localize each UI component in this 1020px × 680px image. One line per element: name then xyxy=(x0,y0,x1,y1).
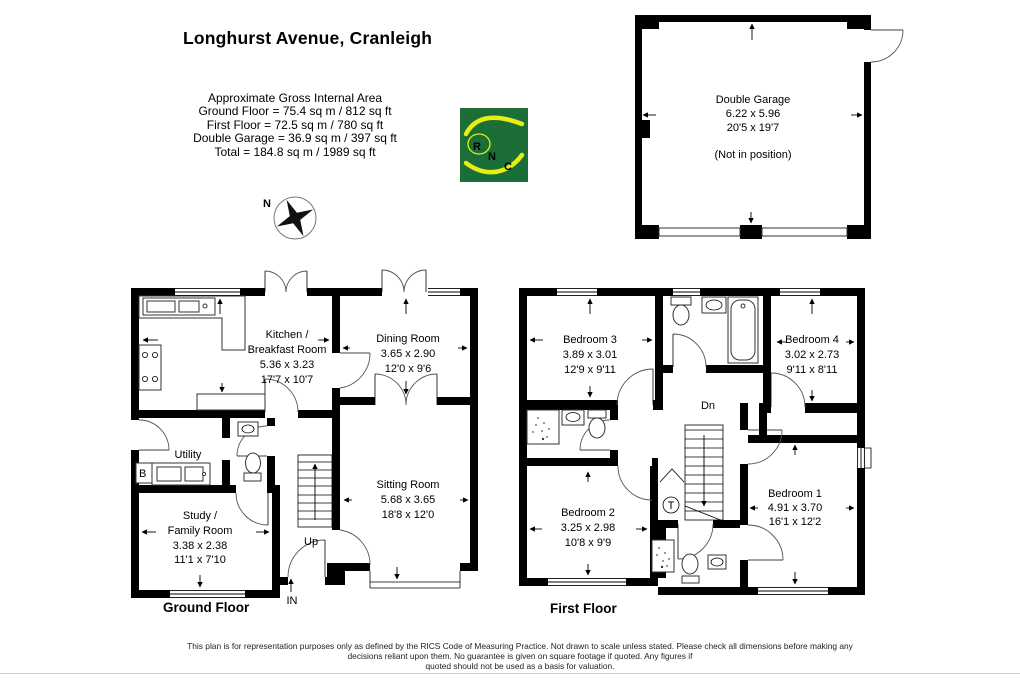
garage-side-door-arc xyxy=(871,30,903,62)
bedroom3-name: Bedroom 3 xyxy=(563,334,617,346)
study-imperial: 11'1 x 7'10 xyxy=(174,554,226,566)
disclaimer: This plan is for representation purposes… xyxy=(150,641,890,671)
bedroom4-window xyxy=(780,288,820,296)
garage-metric: 6.22 x 5.96 xyxy=(726,108,780,120)
bedroom1-metric: 4.91 x 3.70 xyxy=(768,502,822,514)
page-title: Longhurst Avenue, Cranleigh xyxy=(183,28,432,49)
dining-label: Dining Room 3.65 x 2.90 12'0 x 9'6 xyxy=(376,333,440,375)
bedroom2-label: Bedroom 2 3.25 x 2.98 10'8 x 9'9 xyxy=(561,507,615,549)
bathroom-window xyxy=(673,288,700,296)
garage-note: (Not in position) xyxy=(714,149,791,161)
showerroom-sink xyxy=(708,555,726,569)
kitchen-metric: 5.36 x 3.23 xyxy=(260,359,314,371)
disclaimer-line1: This plan is for representation purposes… xyxy=(150,641,890,651)
dining-window xyxy=(428,288,460,296)
kitchen-label: Kitchen / Breakfast Room 5.36 x 3.23 17'… xyxy=(248,329,327,386)
bedroom4-name: Bedroom 4 xyxy=(785,334,839,346)
ensuite-sink xyxy=(562,410,584,425)
ground-floor-label: Ground Floor xyxy=(163,600,249,615)
study-name1: Study / xyxy=(183,510,218,522)
showerroom-shower xyxy=(652,540,674,572)
wc-fixtures xyxy=(238,422,261,481)
compass-rose: N xyxy=(255,185,335,251)
kitchen-window xyxy=(175,288,240,296)
bathtub xyxy=(728,297,758,363)
bedroom1-side-window xyxy=(857,448,871,468)
bedroom3-label: Bedroom 3 3.89 x 3.01 12'9 x 9'11 xyxy=(563,334,617,376)
dining-name: Dining Room xyxy=(376,333,440,345)
area-line-first: First Floor = 72.5 sq m / 780 sq ft xyxy=(140,119,450,132)
bedroom4-label: Bedroom 4 3.02 x 2.73 9'11 x 8'11 xyxy=(785,334,839,376)
ground-stairs: Up xyxy=(298,455,332,548)
rnc-logo: R N C xyxy=(460,108,528,182)
bedroom1-window xyxy=(758,587,828,595)
garage-imperial: 20'5 x 19'7 xyxy=(727,122,780,134)
kitchen-imperial: 17'7 x 10'7 xyxy=(261,374,314,386)
utility-sink xyxy=(152,463,210,485)
water-tank: T xyxy=(663,497,679,513)
boiler-label: B xyxy=(139,468,146,480)
utility-name: Utility xyxy=(175,449,202,461)
hob xyxy=(139,345,161,390)
compass-star xyxy=(277,200,313,236)
disclaimer-line3: quoted should not be used as a basis for… xyxy=(150,661,890,671)
kitchen-sink xyxy=(143,298,215,315)
stairs-down-label: Dn xyxy=(701,400,715,412)
sitting-bay-window xyxy=(370,571,460,588)
first-floor-plan: Dn T Bedroom 3 3.89 x 3.01 12'9 x 9'11 B… xyxy=(518,250,878,600)
bathroom-fixtures xyxy=(671,297,758,363)
garage-plan: Double Garage 6.22 x 5.96 20'5 x 19'7 (N… xyxy=(630,10,905,245)
ensuite-fixtures xyxy=(527,410,606,444)
study-metric: 3.38 x 2.38 xyxy=(173,540,227,552)
kitchen-peninsula-counter xyxy=(197,394,265,410)
disclaimer-line2: decisions reliant upon them. No guarante… xyxy=(150,651,890,661)
sitting-label: Sitting Room 5.68 x 3.65 18'8 x 12'0 xyxy=(377,479,440,521)
kitchen-fixtures xyxy=(139,296,265,410)
ensuite-toilet xyxy=(588,410,606,438)
sitting-imperial: 18'8 x 12'0 xyxy=(382,509,435,521)
bedroom2-name: Bedroom 2 xyxy=(561,507,615,519)
ensuite-shower xyxy=(527,410,559,444)
bedroom3-metric: 3.89 x 3.01 xyxy=(563,349,617,361)
area-line-total: Total = 184.8 sq m / 1989 sq ft xyxy=(140,146,450,159)
bedroom4-metric: 3.02 x 2.73 xyxy=(785,349,839,361)
entrance-label: IN xyxy=(287,595,298,607)
study-label: Study / Family Room 3.38 x 2.38 11'1 x 7… xyxy=(168,510,233,566)
wc-toilet xyxy=(244,453,261,481)
bedroom3-window xyxy=(557,288,597,296)
logo-letter-c: C xyxy=(504,161,512,173)
showerroom-toilet xyxy=(682,554,699,583)
bedroom1-imperial: 16'1 x 12'2 xyxy=(769,516,822,528)
logo-letter-n: N xyxy=(488,151,496,163)
bedroom3-imperial: 12'9 x 9'11 xyxy=(564,364,616,376)
area-summary: Approximate Gross Internal Area Ground F… xyxy=(140,92,450,159)
bedroom4-imperial: 9'11 x 8'11 xyxy=(787,364,838,376)
bedroom1-label: Bedroom 1 4.91 x 3.70 16'1 x 12'2 xyxy=(768,488,822,528)
area-line-ground: Ground Floor = 75.4 sq m / 812 sq ft xyxy=(140,105,450,118)
study-window xyxy=(170,590,245,598)
bedroom1-name: Bedroom 1 xyxy=(768,488,822,500)
bottom-rule xyxy=(0,673,1020,674)
bedroom2-imperial: 10'8 x 9'9 xyxy=(565,537,611,549)
ground-floor-plan: B Up xyxy=(130,248,482,620)
utility-fixtures: B xyxy=(136,463,210,485)
dining-imperial: 12'0 x 9'6 xyxy=(385,363,431,375)
bathroom-toilet xyxy=(671,297,691,325)
study-name2: Family Room xyxy=(168,525,233,537)
kitchen-name1: Kitchen / xyxy=(266,329,310,341)
garage-name: Double Garage xyxy=(716,94,791,106)
floorplan-page: { "title": "Longhurst Avenue, Cranleigh"… xyxy=(0,0,1020,680)
first-stairs: Dn xyxy=(685,400,723,521)
first-floor-label: First Floor xyxy=(550,601,617,616)
bedroom2-metric: 3.25 x 2.98 xyxy=(561,522,615,534)
sitting-name: Sitting Room xyxy=(377,479,440,491)
logo-letter-r: R xyxy=(473,141,481,153)
garage-labels: Double Garage 6.22 x 5.96 20'5 x 19'7 (N… xyxy=(714,94,791,161)
area-line-garage: Double Garage = 36.9 sq m / 397 sq ft xyxy=(140,132,450,145)
closet-bifold-door xyxy=(660,469,684,482)
bathroom-sink xyxy=(702,297,726,313)
area-heading: Approximate Gross Internal Area xyxy=(140,92,450,105)
stairs-up-label: Up xyxy=(304,536,318,548)
sitting-metric: 5.68 x 3.65 xyxy=(381,494,435,506)
dining-metric: 3.65 x 2.90 xyxy=(381,348,435,360)
kitchen-name2: Breakfast Room xyxy=(248,344,327,356)
bedroom2-window xyxy=(548,578,626,586)
north-label: N xyxy=(263,198,271,210)
tank-label: T xyxy=(668,500,675,512)
wc-basin xyxy=(238,422,258,436)
